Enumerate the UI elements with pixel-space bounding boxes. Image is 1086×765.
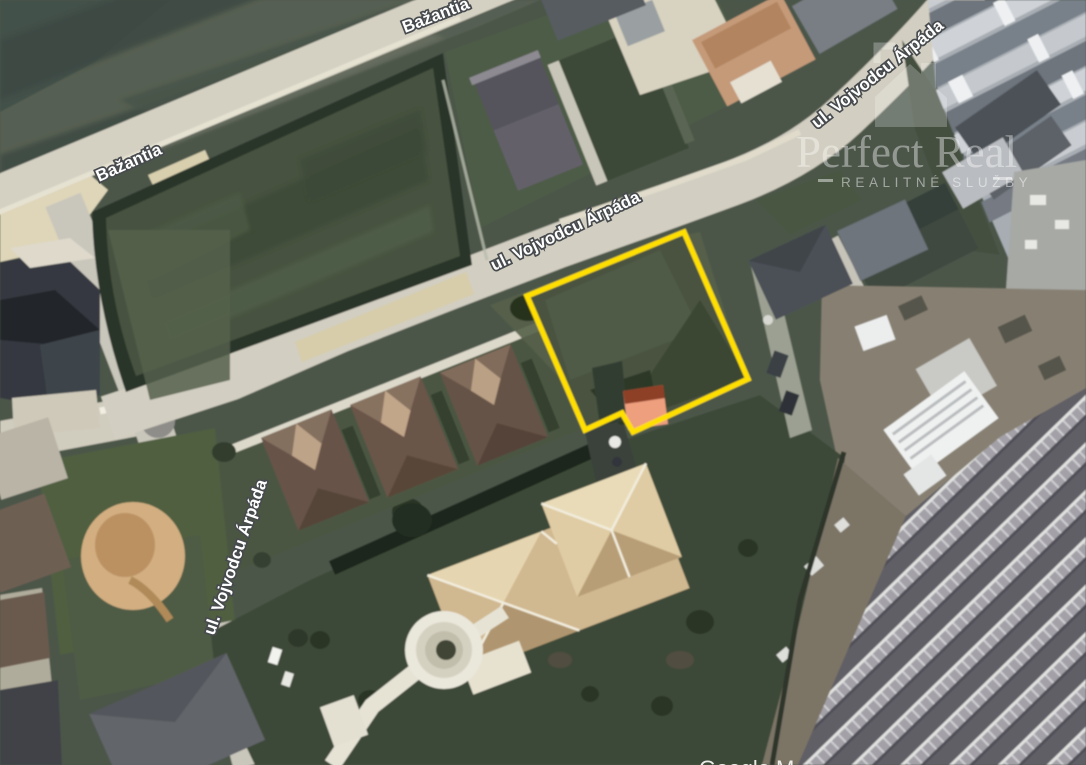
svg-text:Perfect Real: Perfect Real [796, 127, 1017, 177]
svg-text:Google M: Google M [699, 756, 794, 765]
